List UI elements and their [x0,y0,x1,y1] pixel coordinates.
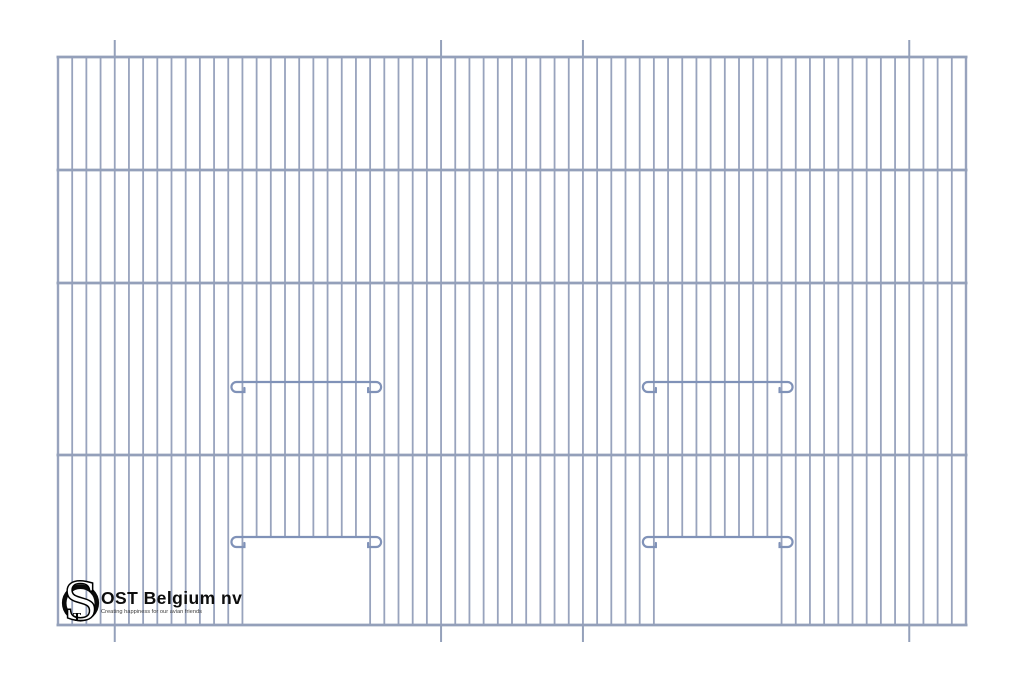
logo-monogram-t: T [73,611,82,624]
wires-layer [58,57,966,625]
drawing-page: S T OST Belgium nv Creating happiness fo… [0,0,1024,683]
door-slide-bar [643,537,793,547]
door-slide-bar [231,382,381,392]
logo-monogram-s: S [63,573,99,633]
company-tagline: Creating happiness for our avian friends [101,609,202,615]
door-slide-bar [643,382,793,392]
door-slide-bar [231,537,381,547]
company-name: OST Belgium nv [101,588,242,608]
cage-front-drawing: S T OST Belgium nv Creating happiness fo… [0,0,1024,683]
